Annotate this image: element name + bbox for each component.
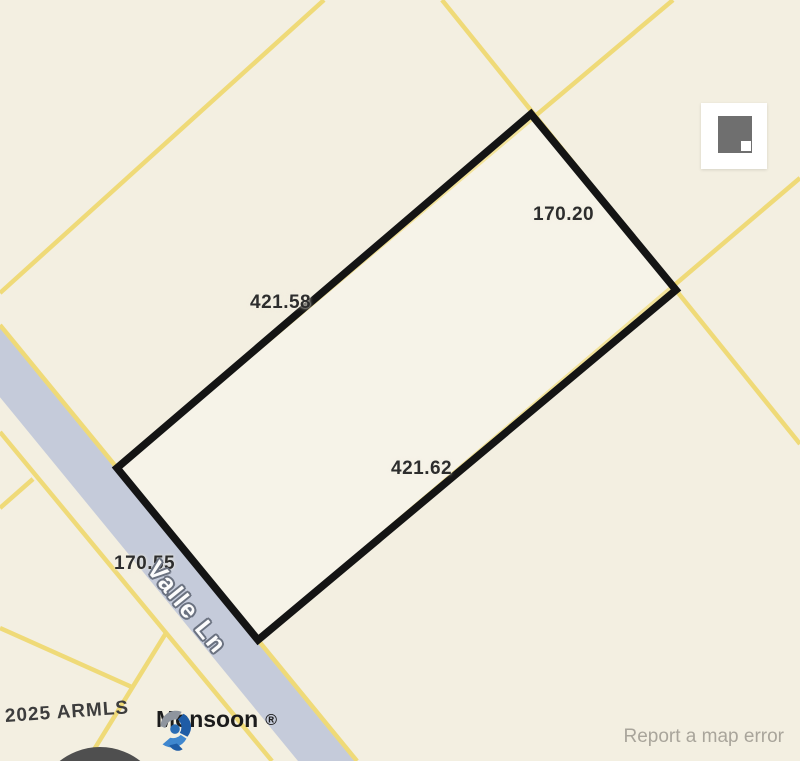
broken-image-icon-notch [741, 141, 751, 151]
monsoon-swirl-center [170, 724, 180, 734]
registered-trademark-symbol: ® [265, 712, 277, 730]
broken-image-icon [718, 116, 752, 153]
monsoon-swirl-darkblue [178, 714, 191, 737]
report-map-error-link[interactable]: Report a map error [623, 726, 784, 748]
parcel-line [0, 628, 134, 688]
parcel-line [0, 479, 33, 508]
map-viewport[interactable]: 170.20 421.58 421.62 170.55 Valle Ln 202… [0, 0, 800, 761]
dimension-label-top-right: 170.20 [533, 204, 594, 226]
subject-parcel-boundary [117, 114, 676, 640]
dimension-label-lower-right: 421.62 [391, 458, 452, 480]
map-canvas [0, 0, 800, 761]
parcel-line [0, 0, 324, 293]
map-image-button[interactable] [701, 103, 767, 169]
monsoon-swirl-icon [152, 706, 198, 756]
dimension-label-upper-left: 421.58 [250, 292, 311, 314]
monsoon-attribution: Monsoon ® [152, 706, 277, 733]
armls-circle-logo [42, 754, 158, 761]
